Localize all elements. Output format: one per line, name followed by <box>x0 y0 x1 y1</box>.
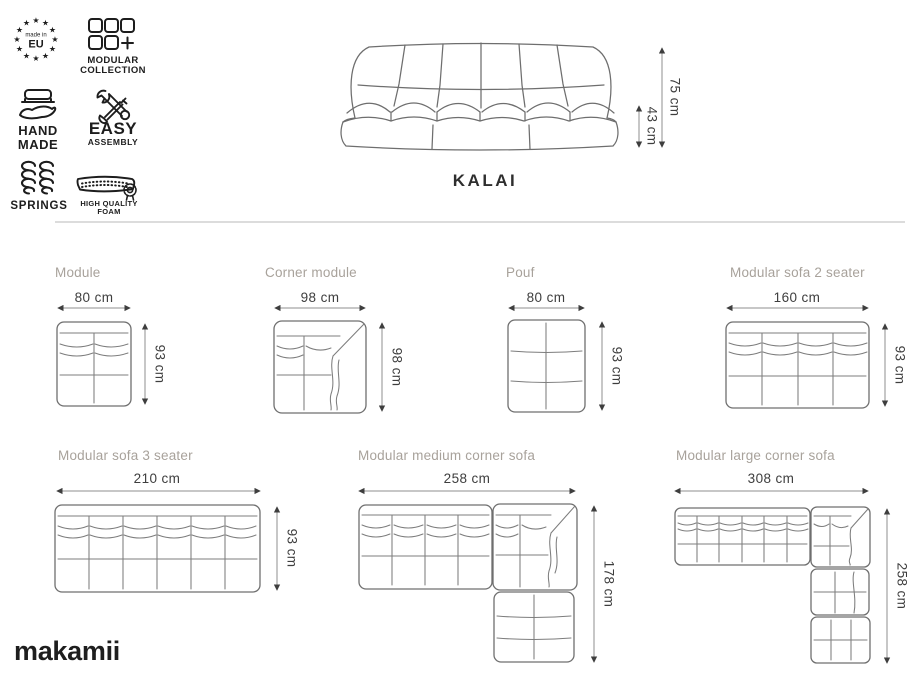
modular-grid-plus-icon <box>86 17 140 53</box>
modular-collection-label: MODULAR COLLECTION <box>80 56 146 77</box>
corner-topview-lines <box>277 324 364 410</box>
pouf-height-label: 93 cm <box>609 347 624 386</box>
springs-icon <box>22 162 58 198</box>
large-width-label: 308 cm <box>748 471 795 486</box>
high-quality-foam-label: HIGH QUALITY FOAM <box>74 200 144 216</box>
hand-holding-sofa <box>20 90 55 118</box>
pouf-title: Pouf <box>506 265 535 280</box>
svg-text:★: ★ <box>32 54 39 63</box>
corner-height-label: 98 cm <box>389 348 404 387</box>
total-height-label: 75 cm <box>667 78 682 117</box>
svg-text:★: ★ <box>42 52 49 61</box>
pouf-width-label: 80 cm <box>527 290 566 305</box>
spec-sheet-page: ★ ★ ★ ★ ★ ★ ★ ★ ★ ★ ★ ★ made in EU MODUL… <box>0 0 910 680</box>
medium-height-label: 178 cm <box>601 561 616 608</box>
svg-text:★: ★ <box>32 16 39 25</box>
sofa2-title: Modular sofa 2 seater <box>730 265 865 280</box>
large-corner-topview-lines <box>678 509 868 660</box>
large-corner-diagram: 308 cm 258 cm <box>670 466 910 670</box>
front-dimension-arrows: 43 cm 75 cm <box>639 48 682 147</box>
eu-label: EU <box>28 39 43 51</box>
high-quality-foam-icon <box>74 172 142 202</box>
section-divider <box>55 221 905 223</box>
corner-width-label: 98 cm <box>301 290 340 305</box>
module-width-label: 80 cm <box>75 290 114 305</box>
large-height-label: 258 cm <box>894 563 909 610</box>
svg-text:★: ★ <box>49 45 56 54</box>
svg-text:★: ★ <box>49 26 56 35</box>
svg-text:★: ★ <box>23 52 30 61</box>
pouf-topview-lines <box>511 323 582 409</box>
seat-height-label: 43 cm <box>644 107 659 146</box>
sofa-front-outline <box>341 43 618 150</box>
module-height-label: 93 cm <box>152 345 167 384</box>
corner-module-title: Corner module <box>265 265 357 280</box>
hand-made-label: HAND MADE <box>10 124 66 152</box>
svg-text:★: ★ <box>23 19 30 28</box>
hand-made-icon <box>16 88 60 124</box>
medium-width-label: 258 cm <box>444 471 491 486</box>
svg-text:★: ★ <box>51 35 58 44</box>
medium-corner-diagram: 258 cm 178 cm <box>355 466 617 670</box>
sofa2-topview-lines <box>729 333 867 405</box>
sofa3-width-label: 210 cm <box>134 471 181 486</box>
pouf-diagram: 80 cm 93 cm <box>498 286 638 426</box>
module-diagram: 80 cm 93 cm <box>50 286 180 426</box>
corner-module-diagram: 98 cm 98 cm <box>263 286 413 426</box>
module-topview-lines <box>60 333 128 403</box>
brand-logo: makamii <box>14 636 120 667</box>
made-in-eu-icon: ★ ★ ★ ★ ★ ★ ★ ★ ★ ★ ★ ★ made in EU <box>12 14 60 62</box>
medium-corner-title: Modular medium corner sofa <box>358 448 535 463</box>
easy-assembly-label: EASY ASSEMBLY <box>86 120 140 148</box>
product-name: KALAI <box>390 171 580 191</box>
large-corner-title: Modular large corner sofa <box>676 448 835 463</box>
sofa3-height-label: 93 cm <box>284 529 299 568</box>
sofa2-height-label: 93 cm <box>892 346 907 385</box>
coil-springs <box>22 162 53 194</box>
sofa3-topview-lines <box>58 516 257 589</box>
svg-text:★: ★ <box>13 35 20 44</box>
springs-label: SPRINGS <box>8 200 70 212</box>
module-title: Module <box>55 265 100 280</box>
front-view-drawing: 43 cm 75 cm <box>333 18 691 173</box>
sofa2-width-label: 160 cm <box>774 290 821 305</box>
sofa2-diagram: 160 cm 93 cm <box>722 286 910 426</box>
svg-text:★: ★ <box>16 45 23 54</box>
medium-corner-topview-lines <box>362 506 575 659</box>
sofa3-title: Modular sofa 3 seater <box>58 448 193 463</box>
module-squares <box>89 19 134 49</box>
quality-rosette <box>124 184 136 200</box>
